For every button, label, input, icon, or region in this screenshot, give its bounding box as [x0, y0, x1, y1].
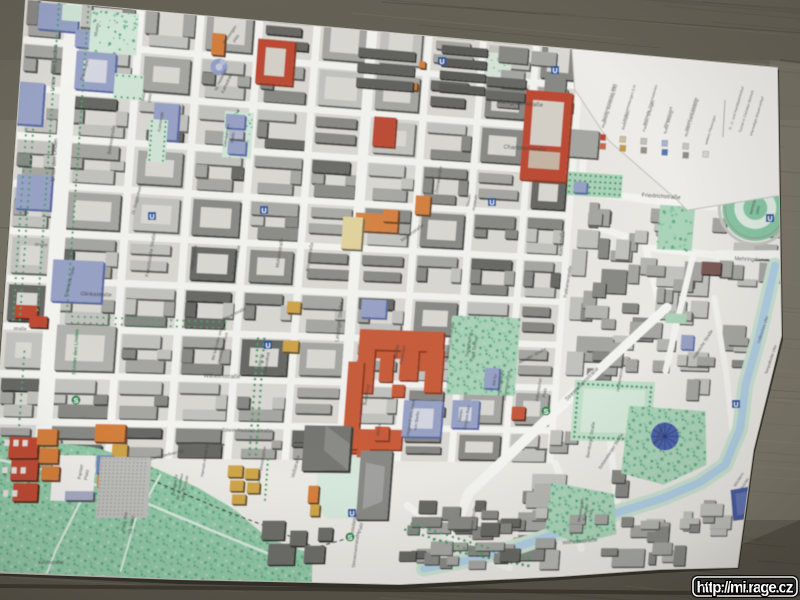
svg-text:http://mi.rage.cz: http://mi.rage.cz: [697, 580, 794, 597]
